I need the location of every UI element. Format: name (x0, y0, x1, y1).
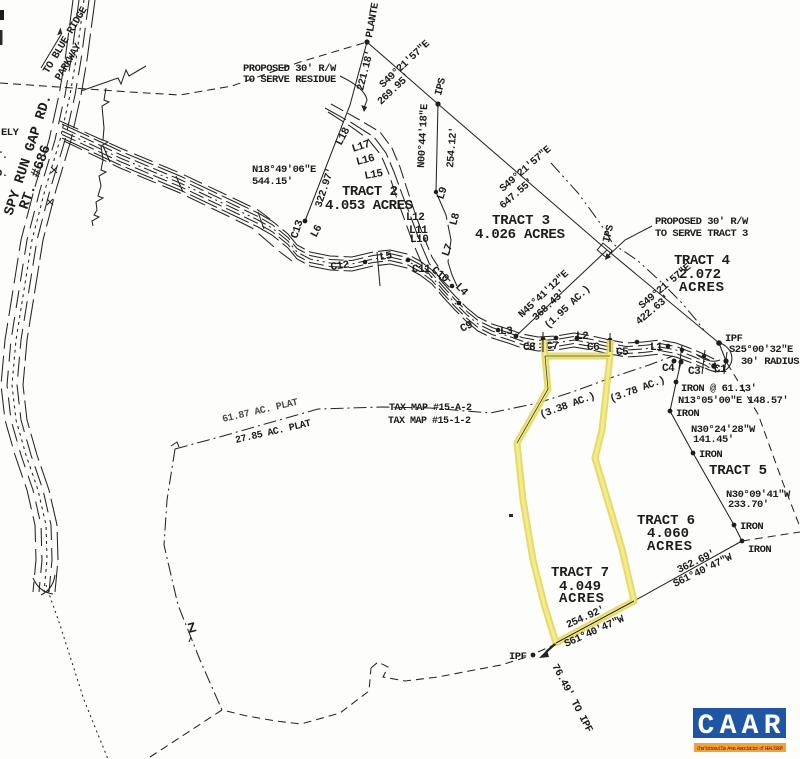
svg-text:141.45': 141.45' (693, 434, 734, 446)
svg-text:L10: L10 (410, 234, 428, 246)
svg-text:IRON: IRON (740, 521, 763, 533)
svg-text:C3: C3 (688, 366, 701, 378)
svg-text:TRACT 5: TRACT 5 (709, 463, 767, 479)
svg-text:ACRES: ACRES (647, 539, 692, 555)
svg-text:D.: D. (0, 168, 8, 180)
svg-text:TAX MAP #15-A-2: TAX MAP #15-A-2 (389, 403, 472, 414)
svg-text:4.026 ACRES: 4.026 ACRES (475, 227, 565, 243)
svg-text:C8: C8 (523, 342, 536, 354)
svg-text:IRON: IRON (748, 544, 771, 556)
svg-text:ACRES: ACRES (679, 280, 724, 296)
svg-text:TAX MAP #15-1-2: TAX MAP #15-1-2 (388, 416, 471, 427)
svg-text:S25°00'32"E: S25°00'32"E (729, 344, 793, 356)
svg-text:L3: L3 (500, 326, 513, 338)
svg-text:TO SERVE RESIDUE: TO SERVE RESIDUE (243, 74, 336, 86)
svg-text:T.: T. (0, 150, 8, 162)
svg-text:Charlottesville Area Associati: Charlottesville Area Association of REAL… (697, 745, 783, 752)
svg-text:L12: L12 (406, 212, 424, 224)
svg-text:IRON: IRON (676, 408, 699, 420)
svg-text:IRON @ 61.13': IRON @ 61.13' (681, 383, 756, 395)
svg-text:N13°05'00"E 148.57': N13°05'00"E 148.57' (678, 395, 788, 407)
svg-text:30' RADIUS: 30' RADIUS (741, 356, 799, 368)
svg-text:L1: L1 (650, 342, 663, 354)
svg-text:ELY: ELY (1, 127, 20, 139)
svg-text:ACRES: ACRES (559, 591, 604, 607)
svg-text:C11: C11 (412, 264, 431, 276)
svg-text:C6: C6 (587, 342, 599, 354)
svg-text:N18°49'06"E: N18°49'06"E (252, 164, 316, 176)
svg-text:TO SERVE TRACT 3: TO SERVE TRACT 3 (655, 228, 748, 240)
svg-text:C5: C5 (616, 347, 629, 359)
svg-text:C4: C4 (662, 363, 675, 375)
svg-text:544.15': 544.15' (252, 176, 293, 188)
svg-text:C12: C12 (330, 260, 350, 274)
svg-text:IRON: IRON (699, 449, 722, 461)
svg-text:233.70': 233.70' (728, 499, 769, 511)
svg-text:PROPOSED 30' R/W: PROPOSED 30' R/W (655, 216, 749, 228)
